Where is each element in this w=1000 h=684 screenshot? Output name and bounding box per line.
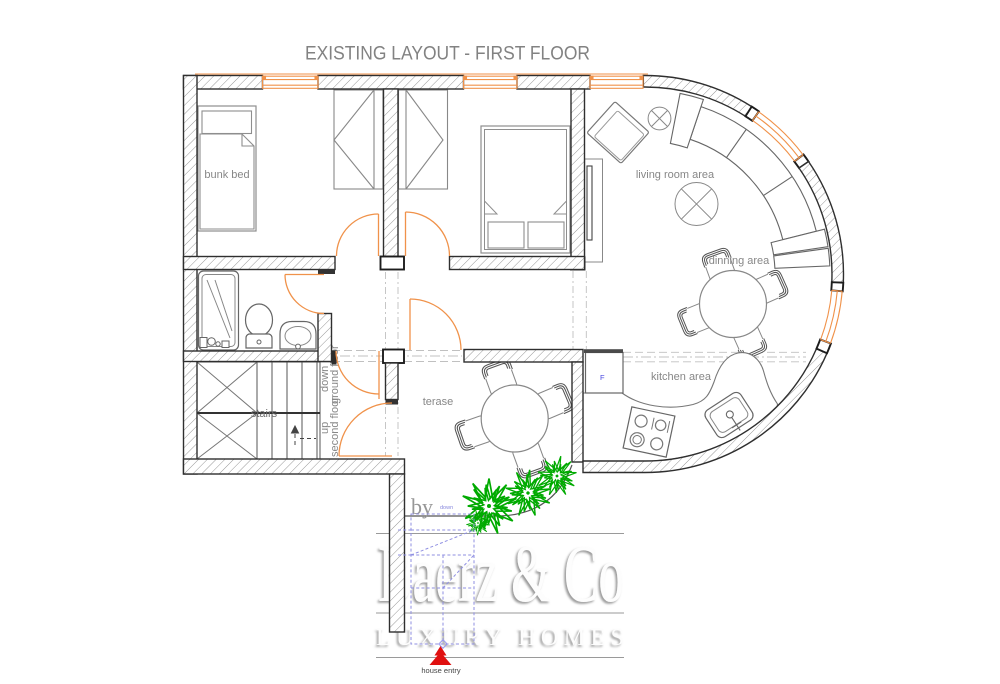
svg-text:living room area: living room area — [636, 169, 715, 181]
svg-text:EXISTING LAYOUT - FIRST FLOOR: EXISTING LAYOUT - FIRST FLOOR — [305, 44, 590, 65]
svg-text:terase: terase — [423, 396, 454, 408]
svg-text:house entry: house entry — [421, 666, 460, 675]
svg-text:kitchen area: kitchen area — [651, 371, 712, 383]
svg-text:down: down — [440, 505, 453, 511]
svg-text:by: by — [411, 494, 433, 519]
svg-text:dinning area: dinning area — [709, 255, 770, 267]
svg-text:stairs: stairs — [251, 408, 278, 420]
svg-text:bunk bed: bunk bed — [204, 169, 249, 181]
svg-text:F: F — [600, 373, 605, 382]
svg-text:Baerz & Co: Baerz & Co — [378, 528, 624, 619]
